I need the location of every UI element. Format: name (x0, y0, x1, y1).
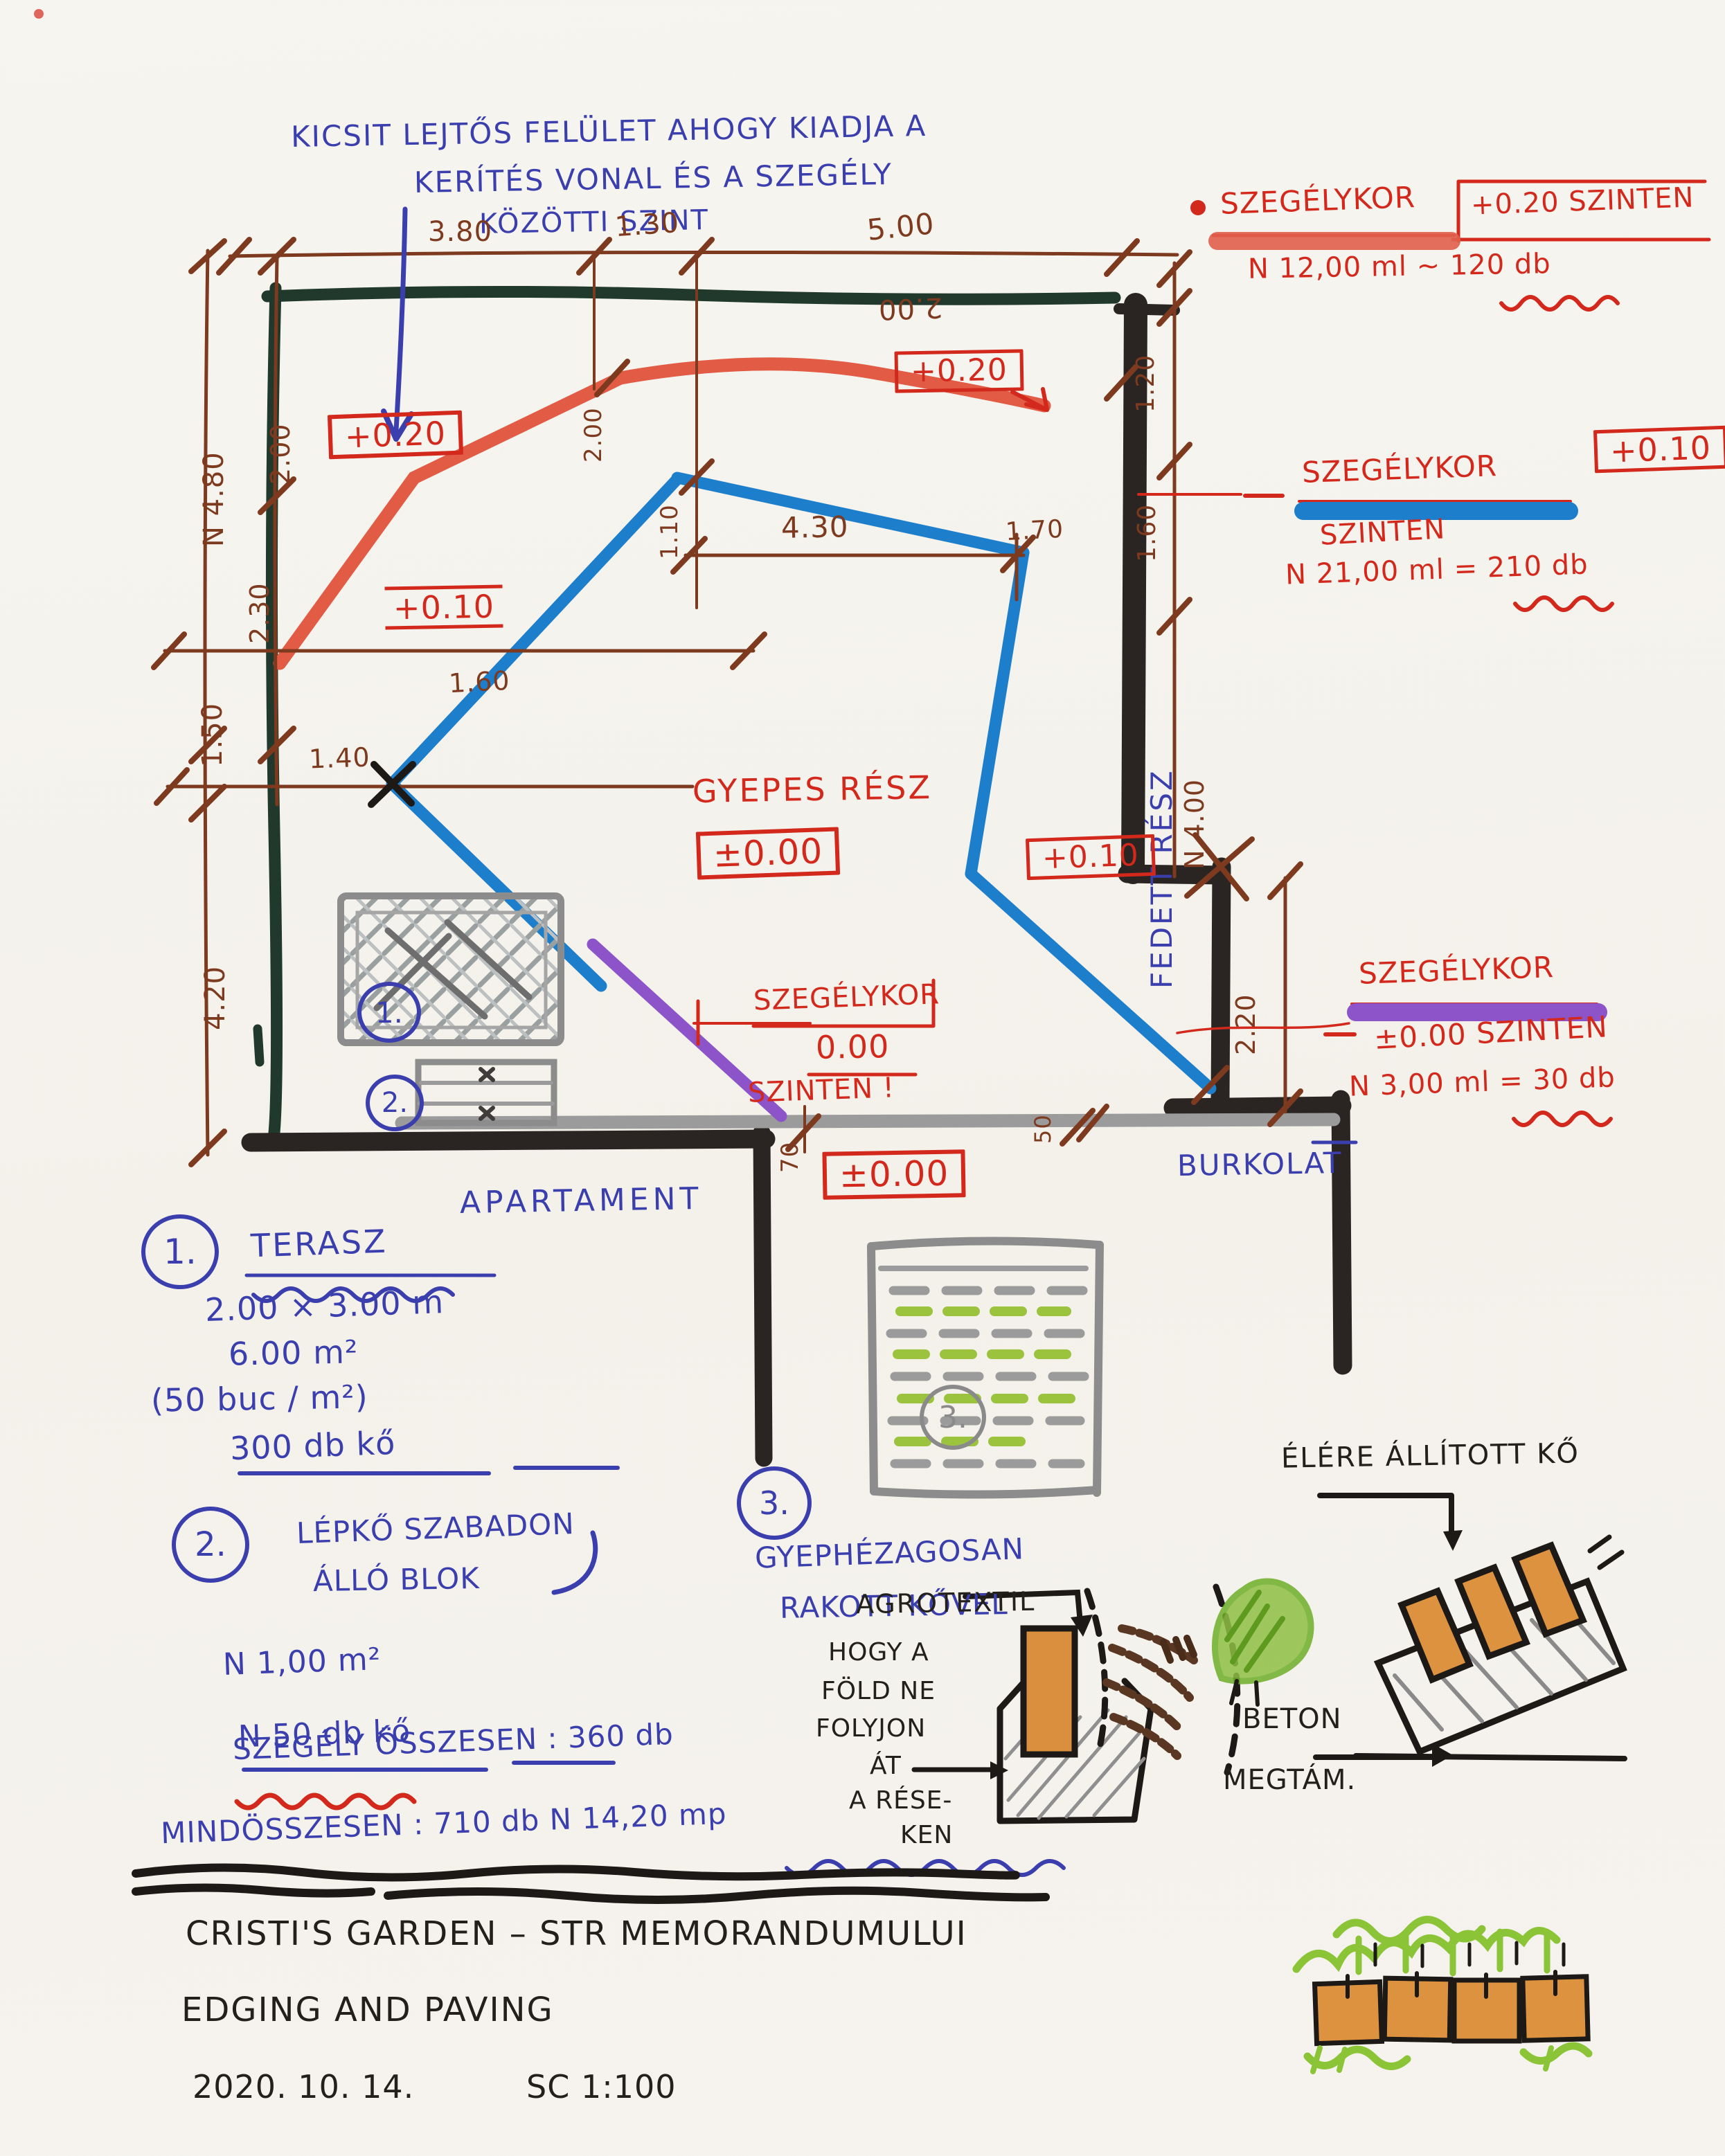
legend-mid-label: SZEGÉLYKOR (1301, 451, 1497, 488)
dim-h-140: 1.40 (308, 744, 370, 773)
note1-line2: 6.00 m² (229, 1335, 359, 1371)
scanned-garden-plan: KICSIT LEJTŐS FELÜLET AHOGY KIADJA A KER… (0, 0, 1725, 2156)
dim-right-1: 1.20 (1133, 354, 1159, 413)
titleblock-subtitle: EDGING AND PAVING (181, 1993, 554, 2027)
agrotextil-c1: HOGY A (828, 1640, 929, 1666)
level-box-right: +0.10 (1026, 834, 1156, 881)
agrotextil-c3: FOLYJON (816, 1716, 926, 1742)
note1-number: 1. (163, 1232, 197, 1272)
dim-left-inner-1: 2.00 (267, 423, 295, 485)
note2-number: 2. (195, 1525, 226, 1564)
agrotextil-c2: FÖLD NE (821, 1678, 936, 1705)
edge-stone-title: ÉLÉRE ÁLLÍTOTT KŐ (1281, 1439, 1580, 1473)
note2-line2: ÁLLÓ BLOK (313, 1563, 480, 1597)
mid-note-l1: SZEGÉLYKOR (753, 980, 940, 1015)
titleblock-scale: SC 1:100 (526, 2070, 677, 2103)
agrotextil-c6: KEN (900, 1822, 953, 1849)
dim-top-3: 5.00 (866, 208, 936, 246)
note3-number: 3. (759, 1484, 789, 1522)
plan-item-1-circle: 1. (357, 982, 421, 1043)
level-box-left-lower: +0.10 (384, 585, 503, 630)
titleblock-project: CRISTI'S GARDEN – STR MEMORANDUMULUI (186, 1916, 967, 1951)
dim-left-outer-1: N 4.80 (199, 451, 229, 547)
note1-title: TERASZ (250, 1225, 388, 1263)
fedett-resz-label: FEDETT RÉSZ (1147, 769, 1177, 989)
dim-right-2: 1.60 (1134, 504, 1161, 562)
dim-h-160: 1.60 (448, 667, 511, 698)
beton-label-1: BETON (1242, 1705, 1342, 1734)
scan-speck (34, 9, 44, 19)
note2-line3: N 1,00 m² (222, 1644, 382, 1681)
agrotextil-title: AGROTEXTIL (856, 1588, 1036, 1619)
note1-line3: (50 buc / m²) (151, 1380, 368, 1417)
level-box-bottom: ±0.00 (822, 1149, 965, 1199)
titleblock-lines (136, 1867, 1046, 1900)
dim-top-2: 1.30 (614, 208, 681, 242)
level-box-left-upper: +0.20 (328, 411, 463, 460)
note1-line4: 300 db kő (229, 1426, 396, 1466)
legend-mid-level: SZINTEN (1319, 514, 1446, 550)
burkolat-label: BURKOLAT (1177, 1148, 1343, 1181)
note1-circle: 1. (141, 1214, 219, 1289)
dim-v-200: 2.00 (582, 407, 607, 462)
legend-mid-box: +0.10 (1593, 426, 1725, 474)
dim-v-110: 1.10 (658, 504, 683, 559)
note1-line1: 2.00 × 3.00 m (204, 1285, 445, 1327)
mid-note-l3: SZINTEN ! (747, 1073, 895, 1107)
titleblock-date: 2020. 10. 14. (193, 2070, 414, 2103)
edge-stone-detail-sketch (1316, 1495, 1625, 1767)
note3-circle: 3. (737, 1466, 812, 1540)
beton-label-2: MEGTÁM. (1223, 1766, 1356, 1795)
apartament-label: APARTAMENT (460, 1183, 703, 1219)
plan-item-2-circle: 2. (366, 1075, 424, 1131)
plan-item-3-circle: 3. (920, 1385, 986, 1450)
dim-left-outer-2: 1.50 (198, 703, 227, 767)
dim-small-70: 70 (778, 1142, 803, 1173)
level-box-top-right: +0.20 (894, 349, 1024, 393)
brick-band-detail-sketch (1296, 1919, 1589, 2072)
dim-top-1: 3.80 (428, 217, 492, 246)
gyepes-resz-label: GYEPES RÉSZ (692, 771, 933, 808)
dim-left-inner-2: 2.30 (247, 582, 274, 644)
legend-top-qty: N 12,00 ml ~ 120 db (1248, 249, 1551, 284)
red-leader-lines (694, 181, 1709, 1075)
dim-top-flipped: 2.00 (877, 292, 942, 323)
agrotextil-c5: A RÉSE- (849, 1788, 952, 1814)
dim-right-4: 2.20 (1233, 994, 1260, 1055)
gyepes-level-box: ±0.00 (696, 827, 840, 879)
junction-x-marks (371, 764, 413, 805)
stepping-block-sketch (418, 1062, 554, 1123)
lawn-area-sketch (871, 1241, 1100, 1494)
note2-circle: 2. (172, 1507, 249, 1583)
legend-top-label: SZEGÉLYKOR (1219, 182, 1415, 219)
dim-left-outer-3: 4.20 (201, 966, 230, 1030)
legend-highlight-bars (1217, 241, 1598, 1012)
plan-item-3-number: 3. (938, 1400, 967, 1435)
dim-diag-170: 1.70 (1005, 516, 1064, 546)
plan-item-1-number: 1. (375, 996, 403, 1030)
dim-small-50: 50 (1032, 1114, 1055, 1144)
legend-bullet (1190, 200, 1206, 215)
dim-right-3: N 4.00 (1181, 779, 1209, 870)
plan-item-2-number: 2. (382, 1087, 408, 1119)
mid-note-l2: 0.00 (816, 1030, 890, 1064)
legend-low-label: SZEGÉLYKOR (1358, 952, 1554, 989)
dim-h-430: 4.30 (781, 512, 849, 544)
legend-top-level: +0.20 SZINTEN (1470, 183, 1695, 219)
header-note-line2: KERÍTÉS VONAL ÉS A SZEGÉLY (414, 159, 893, 198)
agrotextil-c4: ÁT (870, 1753, 902, 1779)
